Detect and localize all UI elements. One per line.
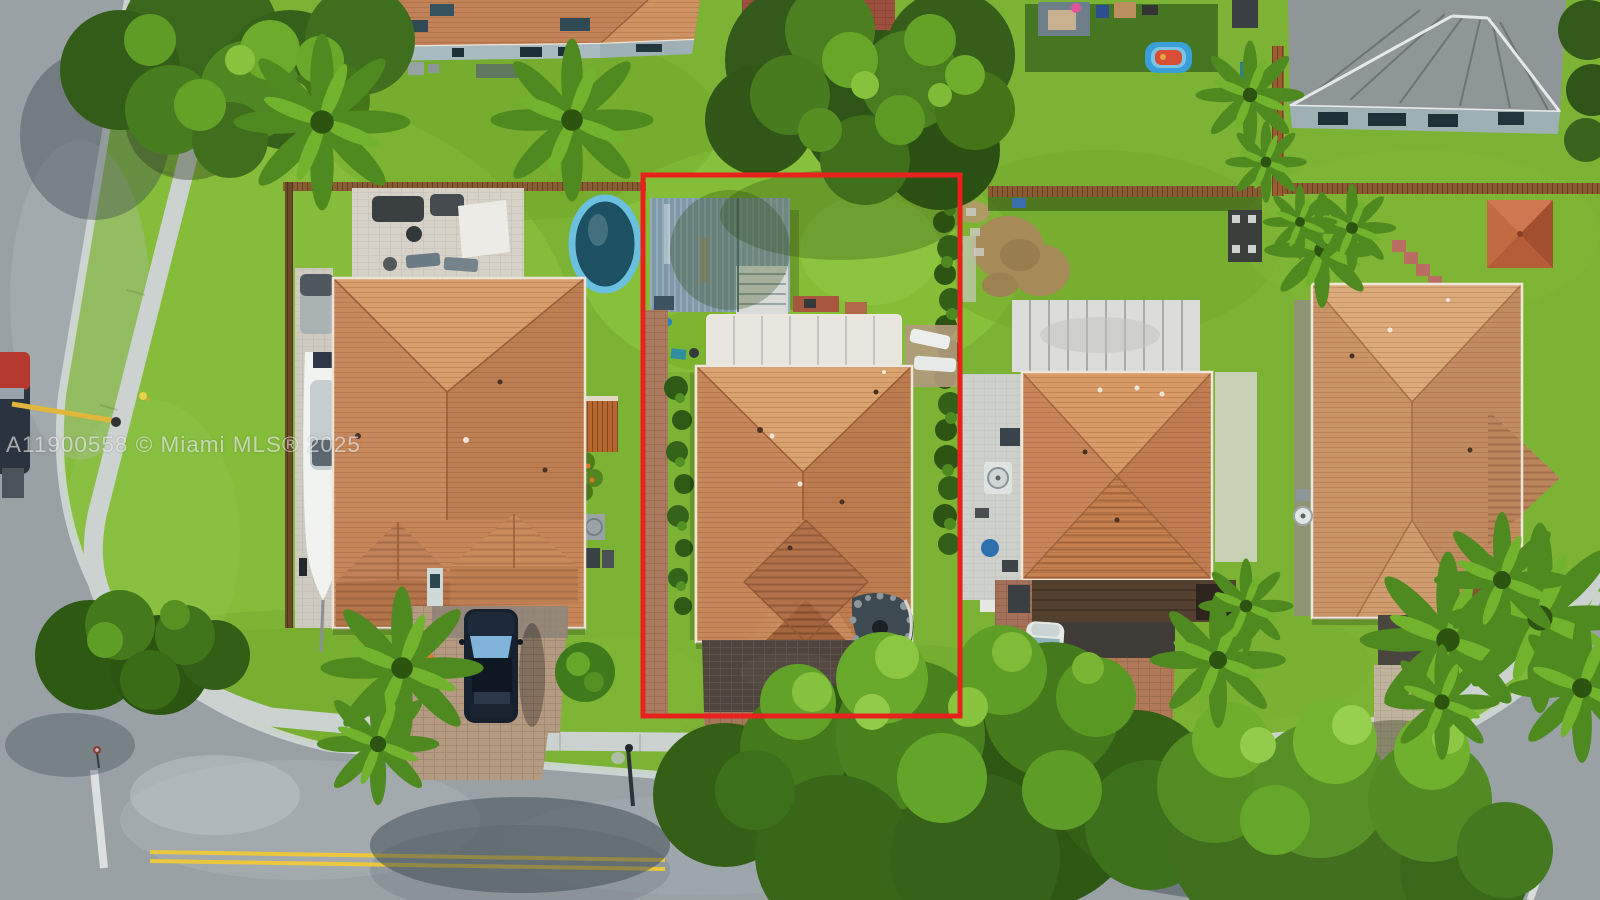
- side-walkway: [644, 310, 668, 716]
- left-house-roof: [333, 278, 585, 635]
- gazebo: [1487, 200, 1553, 268]
- house-top-right: [1288, 0, 1566, 134]
- ac-unit: [408, 62, 424, 75]
- shade-sail: [458, 200, 510, 258]
- utility-cart: [300, 274, 334, 334]
- dark-shed: [1228, 210, 1262, 262]
- white-canopy: [706, 314, 902, 372]
- aerial-photo: A11900558 © Miami MLS® 2025: [0, 0, 1600, 900]
- pink-toy: [1071, 3, 1081, 13]
- blue-barrel: [981, 539, 999, 557]
- aerial-scene: [0, 0, 1600, 900]
- round-pool: [572, 198, 638, 290]
- kiddie-pool: [1145, 42, 1192, 73]
- pyramid-roof: [1022, 372, 1212, 580]
